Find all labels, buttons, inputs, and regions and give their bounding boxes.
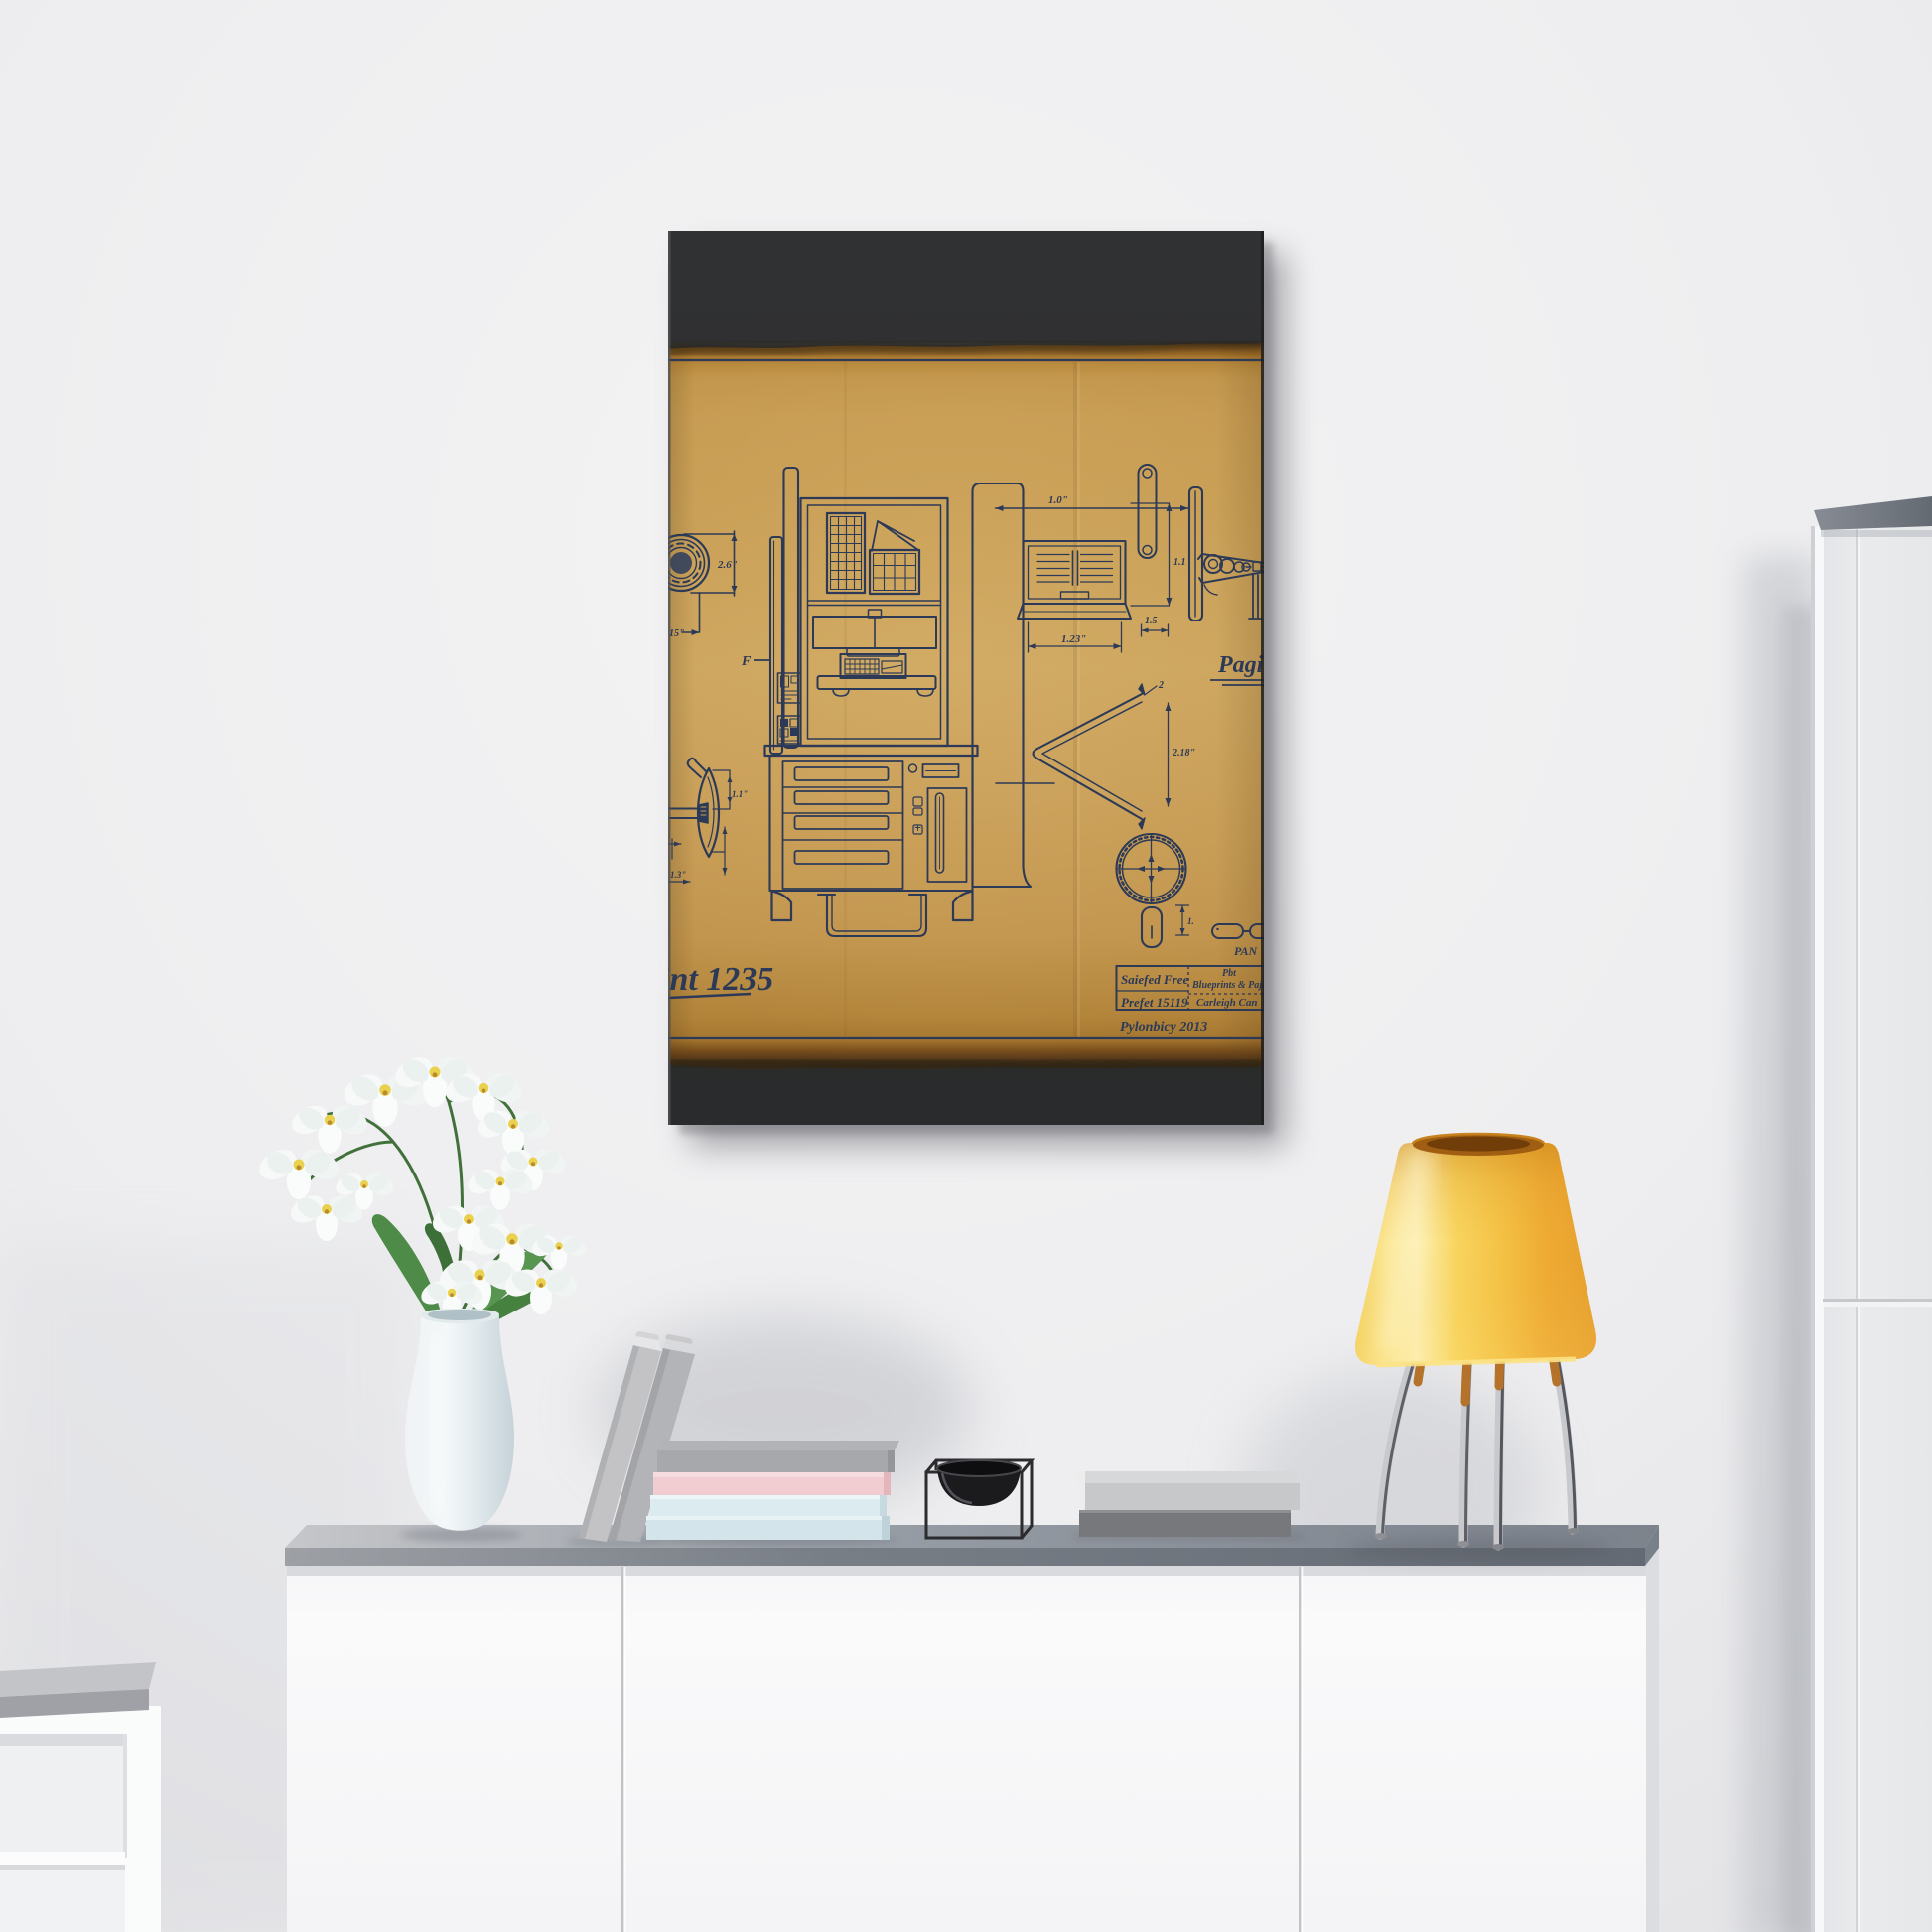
svg-text:Blueprints & Pajn: Blueprints & Pajn: [1191, 980, 1268, 991]
svg-text:2.6": 2.6": [717, 559, 738, 571]
svg-text:Prefet 15119: Prefet 15119: [1121, 995, 1188, 1010]
svg-text:Pbt: Pbt: [1222, 968, 1237, 979]
svg-text:1.3": 1.3": [670, 870, 686, 880]
svg-text:2: 2: [1158, 680, 1164, 691]
svg-text:F: F: [741, 654, 752, 669]
svg-text:1.1: 1.1: [1173, 557, 1186, 568]
svg-text:PAN: PAN: [1234, 944, 1258, 958]
svg-text:Saiefed Free: Saiefed Free: [1121, 972, 1188, 987]
svg-text:1.23": 1.23": [1061, 633, 1086, 645]
svg-text:1.5: 1.5: [1145, 616, 1158, 626]
svg-text:int 1235: int 1235: [660, 961, 773, 998]
svg-text:Pylonbicy 2013: Pylonbicy 2013: [1120, 1020, 1207, 1035]
svg-text:1.0": 1.0": [1048, 494, 1068, 506]
svg-text:1.: 1.: [1187, 916, 1194, 926]
svg-text:Carleigh Can: Carleigh Can: [1196, 997, 1257, 1009]
svg-text:1.1": 1.1": [732, 789, 748, 799]
svg-text:15": 15": [669, 628, 685, 639]
svg-text:2.18": 2.18": [1172, 748, 1195, 759]
